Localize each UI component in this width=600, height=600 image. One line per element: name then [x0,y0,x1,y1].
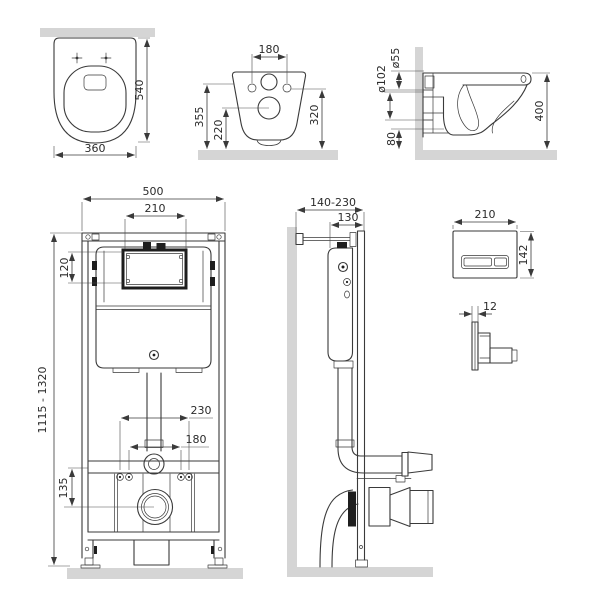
dim-label-d55: ø55 [389,48,402,69]
lower-crossbar [88,532,219,540]
dim-label-height-range: 1115 - 1320 [36,367,49,434]
drain-connector-socket [369,488,390,527]
dim-label-400: 400 [533,101,546,122]
flush-pipe [147,373,161,451]
threaded-rod-holes [117,474,193,481]
view-toilet-back-view: 180 355 220 320 [193,43,338,160]
elbow-flange-side [402,453,408,477]
wall-cross-section [40,28,155,37]
dim-label-320: 320 [308,105,321,126]
pipe-collar [145,440,163,448]
flush-coupler [408,452,432,473]
corner-bracket-left [92,234,99,240]
drain-connector-cone [390,488,410,527]
connector-plate [348,492,356,527]
dim-depth-400: 400 [532,73,550,149]
dim-label-355: 355 [193,107,206,128]
view-toilet-side-view: ø55 ø102 80 400 [375,47,557,160]
cistern-drain-dot [153,354,156,357]
dim-label-135: 135 [57,478,70,499]
wall-cross-section [287,227,297,577]
dim-window-width-210: 210 [125,202,186,249]
dim-label-230: 230 [191,404,212,417]
dim-label-180b: 180 [186,433,207,446]
cistern-base-step [334,361,353,368]
flush-elbow [338,447,402,473]
mechanism-cap [512,350,517,361]
toilet-back-outline [232,72,305,140]
view-toilet-top-view: 540 360 [40,28,155,158]
bowl-silhouette [444,85,528,135]
flush-pipe-side [338,368,352,447]
bowl-inner-curve [458,85,479,131]
anchor-wall-plug [296,234,303,245]
cistern-side-body [328,248,353,361]
dim-rod-inner-180: 180 [129,433,209,470]
cistern-top-cap [337,242,347,249]
dim-inlet-dia-55: ø55 [385,48,433,90]
dim-label-540: 540 [133,80,146,101]
view-flush-plate: 210 142 12 [453,208,534,370]
dim-label-210: 210 [145,202,166,215]
mechanism-housing [478,333,490,363]
dim-label-140-230: 140-230 [310,196,356,209]
frame-rail-side [358,231,365,560]
floor-cross-section [297,567,433,577]
bowl-crease [492,101,514,133]
flush-plate-front [453,231,517,278]
wall-anchor-rod [303,238,352,241]
dim-label-12: 12 [483,300,497,313]
dim-label-360: 360 [85,142,106,155]
drawing-svg: 540 360 180 355 220 320 [0,0,600,600]
frame-legs [81,540,227,568]
corner-bracket-right [208,234,215,240]
dim-label-120: 120 [58,258,71,279]
anchor-bracket [350,233,356,247]
rail-screw [360,546,363,549]
technical-drawing: 540 360 180 355 220 320 [0,0,600,600]
dim-label-d102: ø102 [375,65,388,93]
dim-label-220: 220 [212,120,225,141]
elbow-flange-inner [149,459,160,470]
cistern-bottom-notches [113,368,202,373]
frame-screw-left [86,235,90,239]
mounting-plate-lines [423,73,449,133]
toilet-rim-outline [54,38,136,143]
dim-plate-height-142: 142 [517,232,534,279]
dim-width-360: 360 [54,142,136,158]
wall-cross-section [415,47,423,150]
dim-label-80: 80 [385,132,398,146]
inlet-fitting [143,242,151,249]
crossbar [88,461,219,473]
seat-fixing-hole [521,76,526,83]
frame-foot-side [356,560,368,567]
frame-screw-right [217,235,221,239]
drain-connector-sleeve [410,491,433,524]
view-frame-side-view: 140-230 130 [287,196,433,577]
floor-cross-section [67,568,243,579]
floor-cross-section [198,150,338,160]
drain-downpipe [134,540,169,565]
dim-plate-thickness-12: 12 [459,300,497,322]
pipe-collar-side [336,440,354,447]
dim-plate-width-210: 210 [453,208,517,229]
dim-label-210b: 210 [475,208,496,221]
dim-label-142: 142 [517,245,530,266]
dim-label-130: 130 [338,211,359,224]
view-frame-front-view: 500 210 120 1115 - 1320 230 180 135 [36,185,243,579]
vent-fitting [157,243,166,249]
dim-label-500: 500 [143,185,164,198]
cistern-body [96,247,211,368]
trap-bump [257,140,281,146]
dim-bottom-80: 80 [385,129,444,149]
flush-plate-side-view [472,322,517,370]
floor-cross-section [415,150,557,160]
mechanism-cylinder [490,348,512,363]
dim-label-180: 180 [259,43,280,56]
elbow-flange [144,454,164,474]
